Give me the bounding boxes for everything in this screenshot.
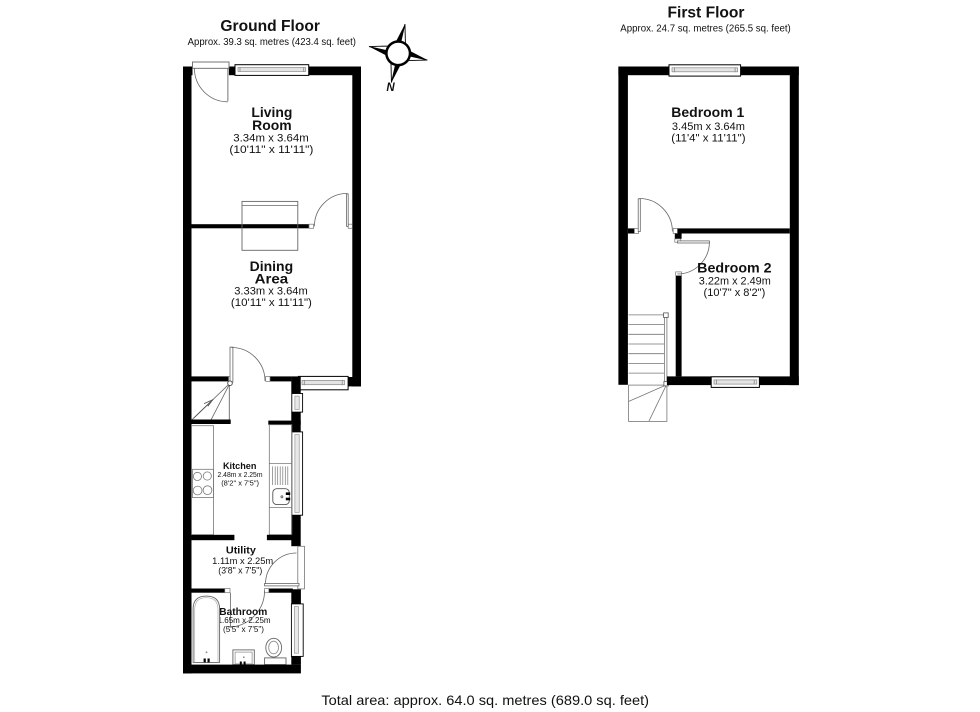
- svg-text:Approx. 39.3 sq. metres (423.4: Approx. 39.3 sq. metres (423.4 sq. feet): [188, 37, 356, 48]
- svg-text:Total area: approx. 64.0 sq. m: Total area: approx. 64.0 sq. metres (689…: [321, 692, 649, 708]
- svg-text:Room: Room: [252, 117, 292, 133]
- svg-text:(10'7" x 8'2"): (10'7" x 8'2"): [704, 287, 766, 299]
- svg-text:3.33m x 3.64m: 3.33m x 3.64m: [234, 285, 308, 297]
- svg-text:Area: Area: [255, 271, 289, 287]
- svg-text:3.34m x 3.64m: 3.34m x 3.64m: [233, 133, 309, 145]
- svg-text:3.22m x 2.49m: 3.22m x 2.49m: [699, 275, 771, 287]
- svg-text:Bedroom 2: Bedroom 2: [697, 260, 771, 275]
- svg-text:1.65m x 2.25m: 1.65m x 2.25m: [218, 616, 271, 625]
- svg-text:First Floor: First Floor: [668, 5, 745, 22]
- svg-text:(3'8" x 7'5"): (3'8" x 7'5"): [218, 565, 262, 575]
- svg-text:Ground Floor: Ground Floor: [220, 18, 320, 35]
- svg-text:Bedroom 1: Bedroom 1: [671, 105, 745, 120]
- svg-text:Approx. 24.7 sq. metres (265.5: Approx. 24.7 sq. metres (265.5 sq. feet): [620, 23, 791, 34]
- svg-text:1.11m x 2.25m: 1.11m x 2.25m: [212, 556, 273, 566]
- svg-text:(5'5" x 7'5"): (5'5" x 7'5"): [223, 625, 264, 634]
- svg-text:N: N: [386, 82, 395, 94]
- svg-text:(10'11" x 11'11"): (10'11" x 11'11"): [231, 297, 312, 309]
- svg-text:3.45m x 3.64m: 3.45m x 3.64m: [672, 121, 745, 133]
- svg-text:(11'4" x 11'11"): (11'4" x 11'11"): [671, 133, 745, 145]
- svg-text:(8'2" x 7'5"): (8'2" x 7'5"): [221, 479, 259, 488]
- svg-text:(10'11" x 11'11"): (10'11" x 11'11"): [229, 144, 313, 156]
